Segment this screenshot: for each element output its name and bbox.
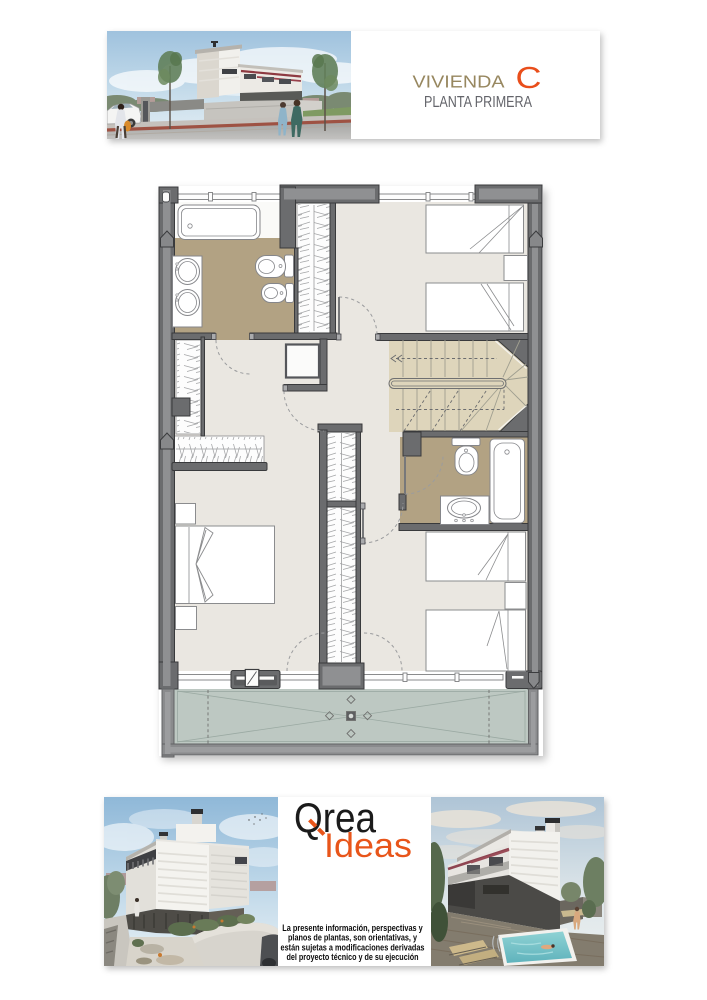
svg-text:del proyecto técnico y de su e: del proyecto técnico y de su ejecución <box>287 952 419 963</box>
svg-text:C: C <box>516 60 542 95</box>
svg-text:Ideas: Ideas <box>324 827 412 865</box>
svg-text:PLANTA PRIMERA: PLANTA PRIMERA <box>424 94 532 111</box>
svg-text:VIVIENDA: VIVIENDA <box>413 71 505 91</box>
